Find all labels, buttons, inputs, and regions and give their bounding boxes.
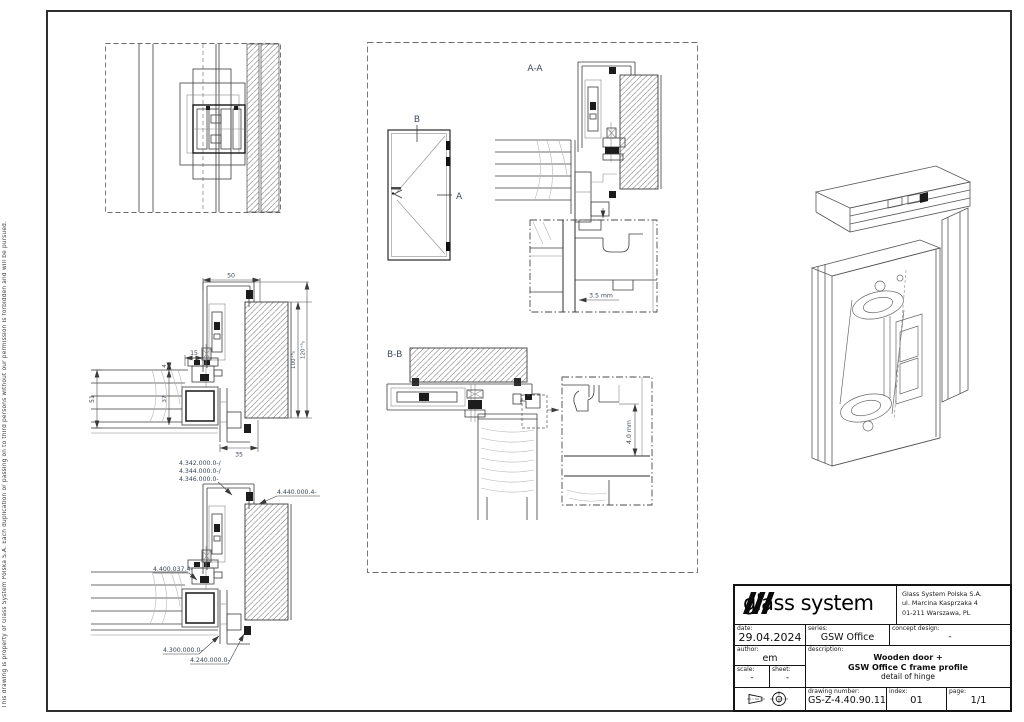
company-line-1: Glass System Polska S.A. bbox=[902, 590, 1010, 599]
dim-120: 120⁺⁵₀ bbox=[300, 340, 307, 359]
drawing-sheet: { "page": { "copyright": "This drawing i… bbox=[0, 0, 1024, 722]
title-block: glass system Glass System Polska S.A. ul… bbox=[733, 584, 1012, 712]
company-line-2: ul. Marcina Kasprzaka 4 bbox=[902, 599, 1010, 608]
detail-bb: 4.0 mm bbox=[562, 377, 652, 505]
description-line-2: GSW Office C frame profile bbox=[806, 663, 1010, 673]
section-marker-b: B bbox=[414, 115, 420, 125]
page-label: page: bbox=[947, 688, 1010, 695]
iso-frame-header bbox=[816, 166, 970, 232]
part-label-5: 4.400.037.4- bbox=[153, 566, 193, 573]
corner-section-geometry bbox=[91, 282, 291, 442]
field-sheet: sheet: - bbox=[770, 665, 806, 687]
copyright-note: This drawing is property of Glass System… bbox=[2, 168, 14, 708]
sections-region: B A A-A bbox=[367, 42, 698, 573]
door-handle bbox=[391, 187, 401, 190]
dim-50: 50 bbox=[227, 273, 235, 280]
description-label: description: bbox=[806, 646, 1010, 653]
field-page: page: 1/1 bbox=[947, 687, 1010, 710]
part-label-6: 4.300.000.0- bbox=[163, 647, 203, 654]
author-value: em bbox=[735, 653, 805, 664]
description-line-3: detail of hinge bbox=[806, 672, 1010, 681]
field-index: index: 01 bbox=[887, 687, 947, 710]
company-line-3: 01-211 Warszawa, PL bbox=[902, 609, 1010, 618]
part-label-4: 4.440.000.4- bbox=[277, 489, 317, 496]
gap-bb-label: 4.0 mm bbox=[626, 420, 633, 444]
company-address: Glass System Polska S.A. ul. Marcina Kas… bbox=[897, 586, 1010, 624]
section-bb-label: B-B bbox=[387, 350, 402, 360]
isometric-hinge-view bbox=[788, 150, 1012, 482]
detail-aa: 3.5 mm bbox=[530, 220, 657, 312]
plan-view-drawing bbox=[105, 43, 281, 213]
iso-hinge-body bbox=[838, 270, 922, 431]
index-label: index: bbox=[887, 688, 946, 695]
series-value: GSW Office bbox=[806, 632, 889, 643]
scale-value: - bbox=[735, 673, 769, 683]
drawing-number-label: drawing number: bbox=[806, 688, 886, 695]
index-value: 01 bbox=[887, 695, 946, 706]
date-value: 29.04.2024 bbox=[735, 631, 805, 644]
logo-slashes-icon bbox=[743, 591, 773, 615]
author-label: author: bbox=[735, 646, 805, 653]
corner-section-parts: 4.342.000.0-/ 4.344.000.0-/ 4.346.000.0-… bbox=[88, 458, 348, 693]
field-concept-design: concept design: - bbox=[890, 624, 1010, 645]
field-author: author: em bbox=[735, 645, 806, 665]
dim-37: 37 bbox=[162, 395, 168, 403]
field-date: date: 29.04.2024 bbox=[735, 624, 806, 645]
part-label-1: 4.342.000.0-/ bbox=[179, 460, 222, 467]
dim-51: 51 bbox=[89, 395, 96, 403]
hinge-mark-mid bbox=[446, 157, 451, 166]
concept-value: - bbox=[890, 632, 1010, 642]
drawing-number-value: GS-Z-4.40.90.11 bbox=[806, 695, 886, 706]
field-series: series: GSW Office bbox=[806, 624, 890, 645]
dim-15: 15 bbox=[190, 350, 198, 357]
corner-section-dimensioned: 50 15 4 37 51 100⁺⁵₀ 120⁺⁵₀ 35 bbox=[88, 262, 343, 462]
dim-4: 4 bbox=[162, 364, 168, 368]
part-number-labels: 4.342.000.0-/ 4.344.000.0-/ 4.346.000.0-… bbox=[153, 460, 320, 664]
field-description: description: Wooden door + GSW Office C … bbox=[806, 645, 1010, 687]
scale-label: scale: bbox=[735, 666, 769, 673]
hinge-mark-bottom bbox=[446, 242, 451, 251]
series-label: series: bbox=[806, 625, 889, 632]
section-bb: B-B bbox=[387, 348, 559, 520]
plan-hinge-assembly bbox=[180, 69, 245, 179]
dim-100: 100⁺⁵₀ bbox=[290, 350, 297, 369]
iso-jamb bbox=[942, 208, 968, 402]
projection-symbol-cell bbox=[735, 687, 806, 710]
section-marker-a: A bbox=[456, 192, 463, 202]
projection-symbol-icon bbox=[747, 691, 793, 707]
section-aa-label: A-A bbox=[527, 64, 543, 74]
sheet-value: - bbox=[770, 673, 805, 683]
logo-cell: glass system bbox=[735, 586, 897, 624]
sheet-label: sheet: bbox=[770, 666, 805, 673]
gap-aa-label: 3.5 mm bbox=[589, 293, 613, 300]
part-label-3: 4.346.000.0- bbox=[179, 476, 219, 483]
section-aa: A-A bbox=[495, 62, 661, 230]
field-drawing-number: drawing number: GS-Z-4.40.90.11 bbox=[806, 687, 887, 710]
page-value: 1/1 bbox=[947, 695, 1010, 706]
plan-wall-hatch bbox=[247, 44, 279, 212]
concept-label: concept design: bbox=[890, 625, 1010, 632]
part-label-2: 4.344.000.0-/ bbox=[179, 468, 222, 475]
hinge-mark-top bbox=[446, 141, 451, 150]
field-scale: scale: - bbox=[735, 665, 770, 687]
description-line-1: Wooden door + bbox=[806, 653, 1010, 663]
part-label-7: 4.240.000.0- bbox=[190, 657, 230, 664]
door-elevation: B A bbox=[388, 115, 463, 260]
iso-door-slab bbox=[812, 240, 940, 466]
